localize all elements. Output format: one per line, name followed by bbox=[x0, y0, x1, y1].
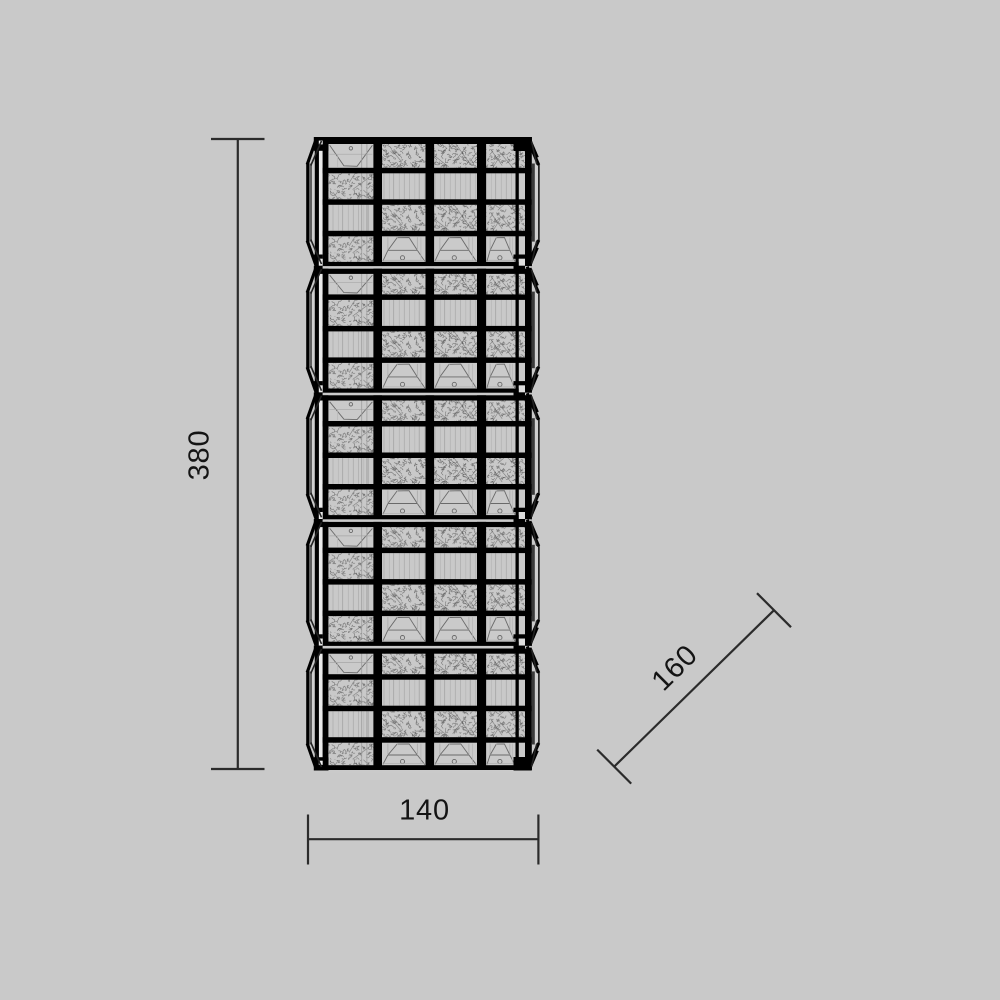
svg-text:380: 380 bbox=[184, 430, 216, 481]
svg-text:140: 140 bbox=[399, 795, 450, 827]
